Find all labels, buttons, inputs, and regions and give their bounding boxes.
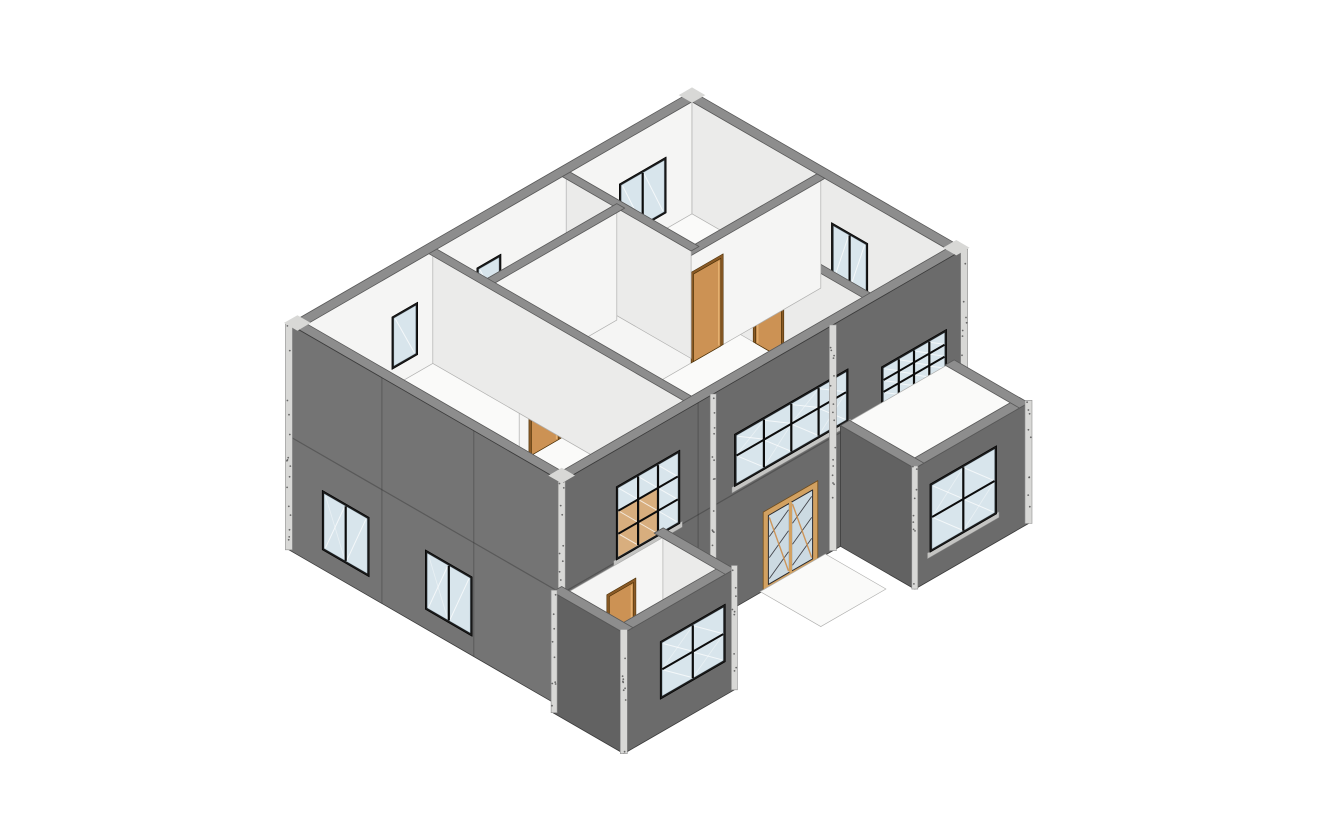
trim-speckle — [1028, 409, 1030, 411]
model-viewport[interactable]: 3D axonometric section view of a two-sto… — [0, 0, 1318, 824]
trim-speckle — [712, 545, 714, 547]
trim-speckle — [713, 478, 715, 480]
trim-speckle — [833, 355, 835, 357]
trim-speckle — [624, 687, 626, 689]
trim-speckle — [832, 482, 834, 484]
trim-speckle — [1029, 413, 1031, 415]
trim-speckle — [734, 670, 736, 672]
trim-speckle — [288, 536, 290, 538]
trim-speckle — [287, 400, 289, 402]
trim-speckle — [563, 487, 565, 489]
trim-speckle — [555, 594, 557, 596]
trim-speckle — [554, 656, 556, 658]
trim-speckle — [554, 681, 556, 683]
trim-speckle — [562, 545, 564, 547]
trim-speckle — [961, 354, 963, 356]
trim-speckle — [732, 609, 734, 611]
trim-speckle — [962, 330, 964, 332]
trim-speckle — [712, 531, 714, 533]
trim-speckle — [733, 614, 735, 616]
trim-speckle — [1027, 494, 1029, 496]
trim-speckle — [713, 459, 715, 461]
trim-speckle — [832, 474, 834, 476]
trim-speckle — [963, 301, 965, 303]
trim-speckle — [289, 465, 291, 467]
trim-speckle — [1030, 436, 1032, 438]
trim-speckle — [1028, 429, 1030, 431]
trim-speckle — [1028, 477, 1030, 479]
trim-speckle — [832, 459, 834, 461]
trim-speckle — [914, 530, 916, 532]
trim-speckle — [735, 667, 737, 669]
trim-speckle — [830, 385, 832, 387]
trim-speckle — [551, 705, 553, 707]
trim-speckle — [289, 350, 291, 352]
trim-speckle — [913, 583, 915, 585]
trim-speckle — [714, 427, 716, 429]
trim-speckle — [555, 683, 557, 685]
trim-speckle — [553, 628, 555, 630]
trim-speckle — [624, 751, 626, 753]
trim-speckle — [287, 457, 289, 459]
trim-speckle — [832, 412, 834, 414]
trim-speckle — [1026, 401, 1028, 403]
trim-speckle — [625, 699, 627, 701]
trim-speckle — [553, 613, 555, 615]
porch-corner-pillar — [620, 629, 627, 753]
trim-speckle — [713, 510, 715, 512]
trim-speckle — [1029, 506, 1031, 508]
trim-speckle — [713, 397, 715, 399]
trim-speckle — [559, 553, 561, 555]
trim-speckle — [832, 497, 834, 499]
trim-speckle — [916, 489, 918, 491]
isometric-building-model — [0, 0, 1318, 824]
trim-speckle — [286, 487, 288, 489]
trim-speckle — [551, 683, 553, 685]
trim-speckle — [966, 322, 968, 324]
trim-speckle — [289, 529, 291, 531]
trim-speckle — [624, 658, 626, 660]
trim-speckle — [735, 595, 737, 597]
trim-speckle — [830, 350, 832, 352]
trim-speckle — [288, 414, 290, 416]
trim-speckle — [622, 682, 624, 684]
trim-speckle — [560, 505, 562, 507]
trim-speckle — [913, 529, 915, 531]
trim-speckle — [916, 468, 918, 470]
trim-speckle — [965, 317, 967, 319]
trim-speckle — [289, 434, 291, 436]
trim-speckle — [912, 466, 914, 468]
trim-speckle — [913, 515, 915, 517]
trim-speckle — [833, 357, 835, 359]
porch-corner-pillar — [551, 590, 557, 713]
trim-speckle — [833, 419, 835, 421]
trim-speckle — [287, 325, 289, 327]
corner-trim-pillar — [285, 324, 292, 550]
trim-speckle — [562, 560, 564, 562]
bumpout-corner-pillar — [912, 466, 918, 589]
trim-speckle — [714, 412, 716, 414]
trim-speckle — [832, 465, 834, 467]
trim-speckle — [287, 459, 289, 461]
trim-speckle — [713, 433, 715, 435]
bumpout-corner-pillar — [1025, 400, 1032, 523]
trim-speckle — [734, 611, 736, 613]
trim-speckle — [735, 587, 737, 589]
trim-speckle — [552, 641, 554, 643]
trim-speckle — [289, 476, 291, 478]
trim-speckle — [622, 678, 624, 680]
trim-speckle — [833, 403, 835, 405]
trim-speckle — [833, 375, 835, 377]
trim-speckle — [733, 653, 735, 655]
interior-door-2 — [694, 258, 721, 361]
trim-speckle — [732, 569, 734, 571]
trim-speckle — [712, 456, 714, 458]
trim-speckle — [561, 514, 563, 516]
trim-speckle — [559, 571, 561, 573]
trim-speckle — [912, 521, 914, 523]
trim-speckle — [622, 675, 624, 677]
trim-speckle — [288, 506, 290, 508]
trim-speckle — [623, 689, 625, 691]
trim-speckle — [962, 335, 964, 337]
trim-speckle — [288, 539, 290, 541]
trim-speckle — [834, 447, 836, 449]
trim-speckle — [559, 483, 561, 485]
trim-speckle — [914, 498, 916, 500]
trim-speckle — [560, 579, 562, 581]
trim-speckle — [964, 263, 966, 265]
trim-speckle — [830, 347, 832, 349]
trim-speckle — [290, 514, 292, 516]
